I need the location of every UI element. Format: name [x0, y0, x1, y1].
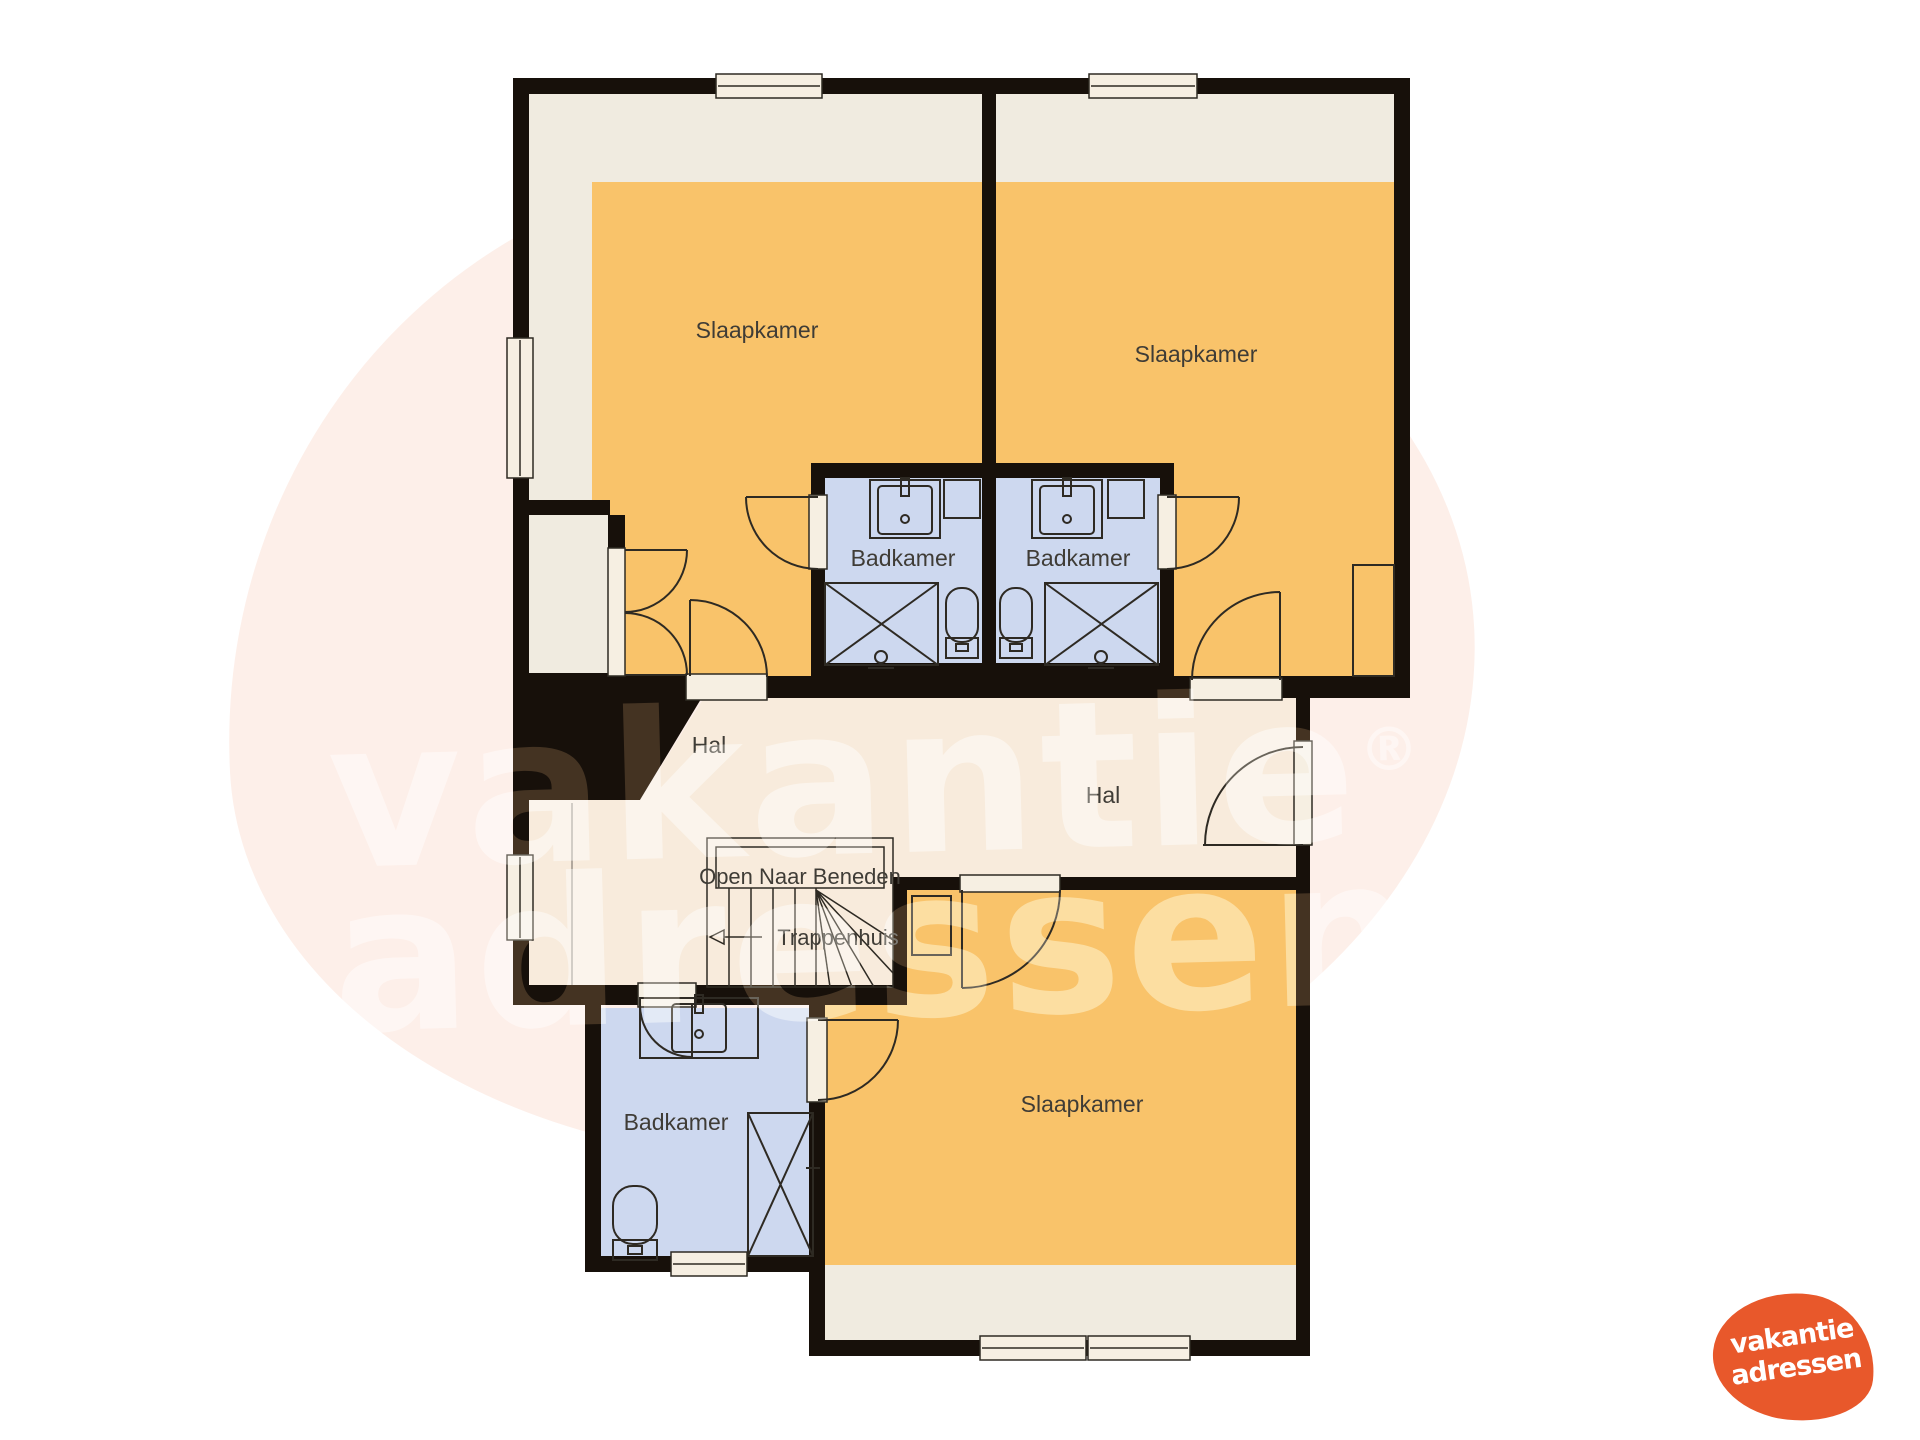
watermark: vakantie® adressen [326, 681, 1634, 1043]
floorplan-page: Slaapkamer Slaapkamer Badkamer Badkamer … [0, 0, 1920, 1440]
label-slaapkamer-top-right: Slaapkamer [1135, 341, 1258, 367]
watermark-text-2: adressen [329, 814, 1421, 1080]
label-badkamer-bottom: Badkamer [624, 1109, 729, 1135]
room-badkamer-top-left [825, 478, 982, 676]
door-frame-nook [608, 548, 625, 676]
label-slaapkamer-bottom: Slaapkamer [1021, 1091, 1144, 1117]
wall-bedroom-divider [982, 94, 996, 676]
wall-right-top [1394, 78, 1410, 698]
closet-nook-floor [529, 515, 608, 676]
door-frame-bathroom1 [809, 495, 827, 569]
label-badkamer-top-left: Badkamer [851, 545, 956, 571]
door-frame-bathroom2 [1158, 495, 1176, 569]
wall-top [513, 78, 1410, 94]
wall-nook-top [513, 500, 610, 515]
label-badkamer-top-right: Badkamer [1026, 545, 1131, 571]
registered-mark-icon: ® [1358, 714, 1420, 786]
room-badkamer-top-right [996, 478, 1160, 676]
wall-bathrooms-top [811, 463, 1174, 478]
label-slaapkamer-top-left: Slaapkamer [696, 317, 819, 343]
brand-logo: vakantie adressen [1713, 1293, 1875, 1420]
watermark-line2: adressen [330, 845, 1634, 1043]
